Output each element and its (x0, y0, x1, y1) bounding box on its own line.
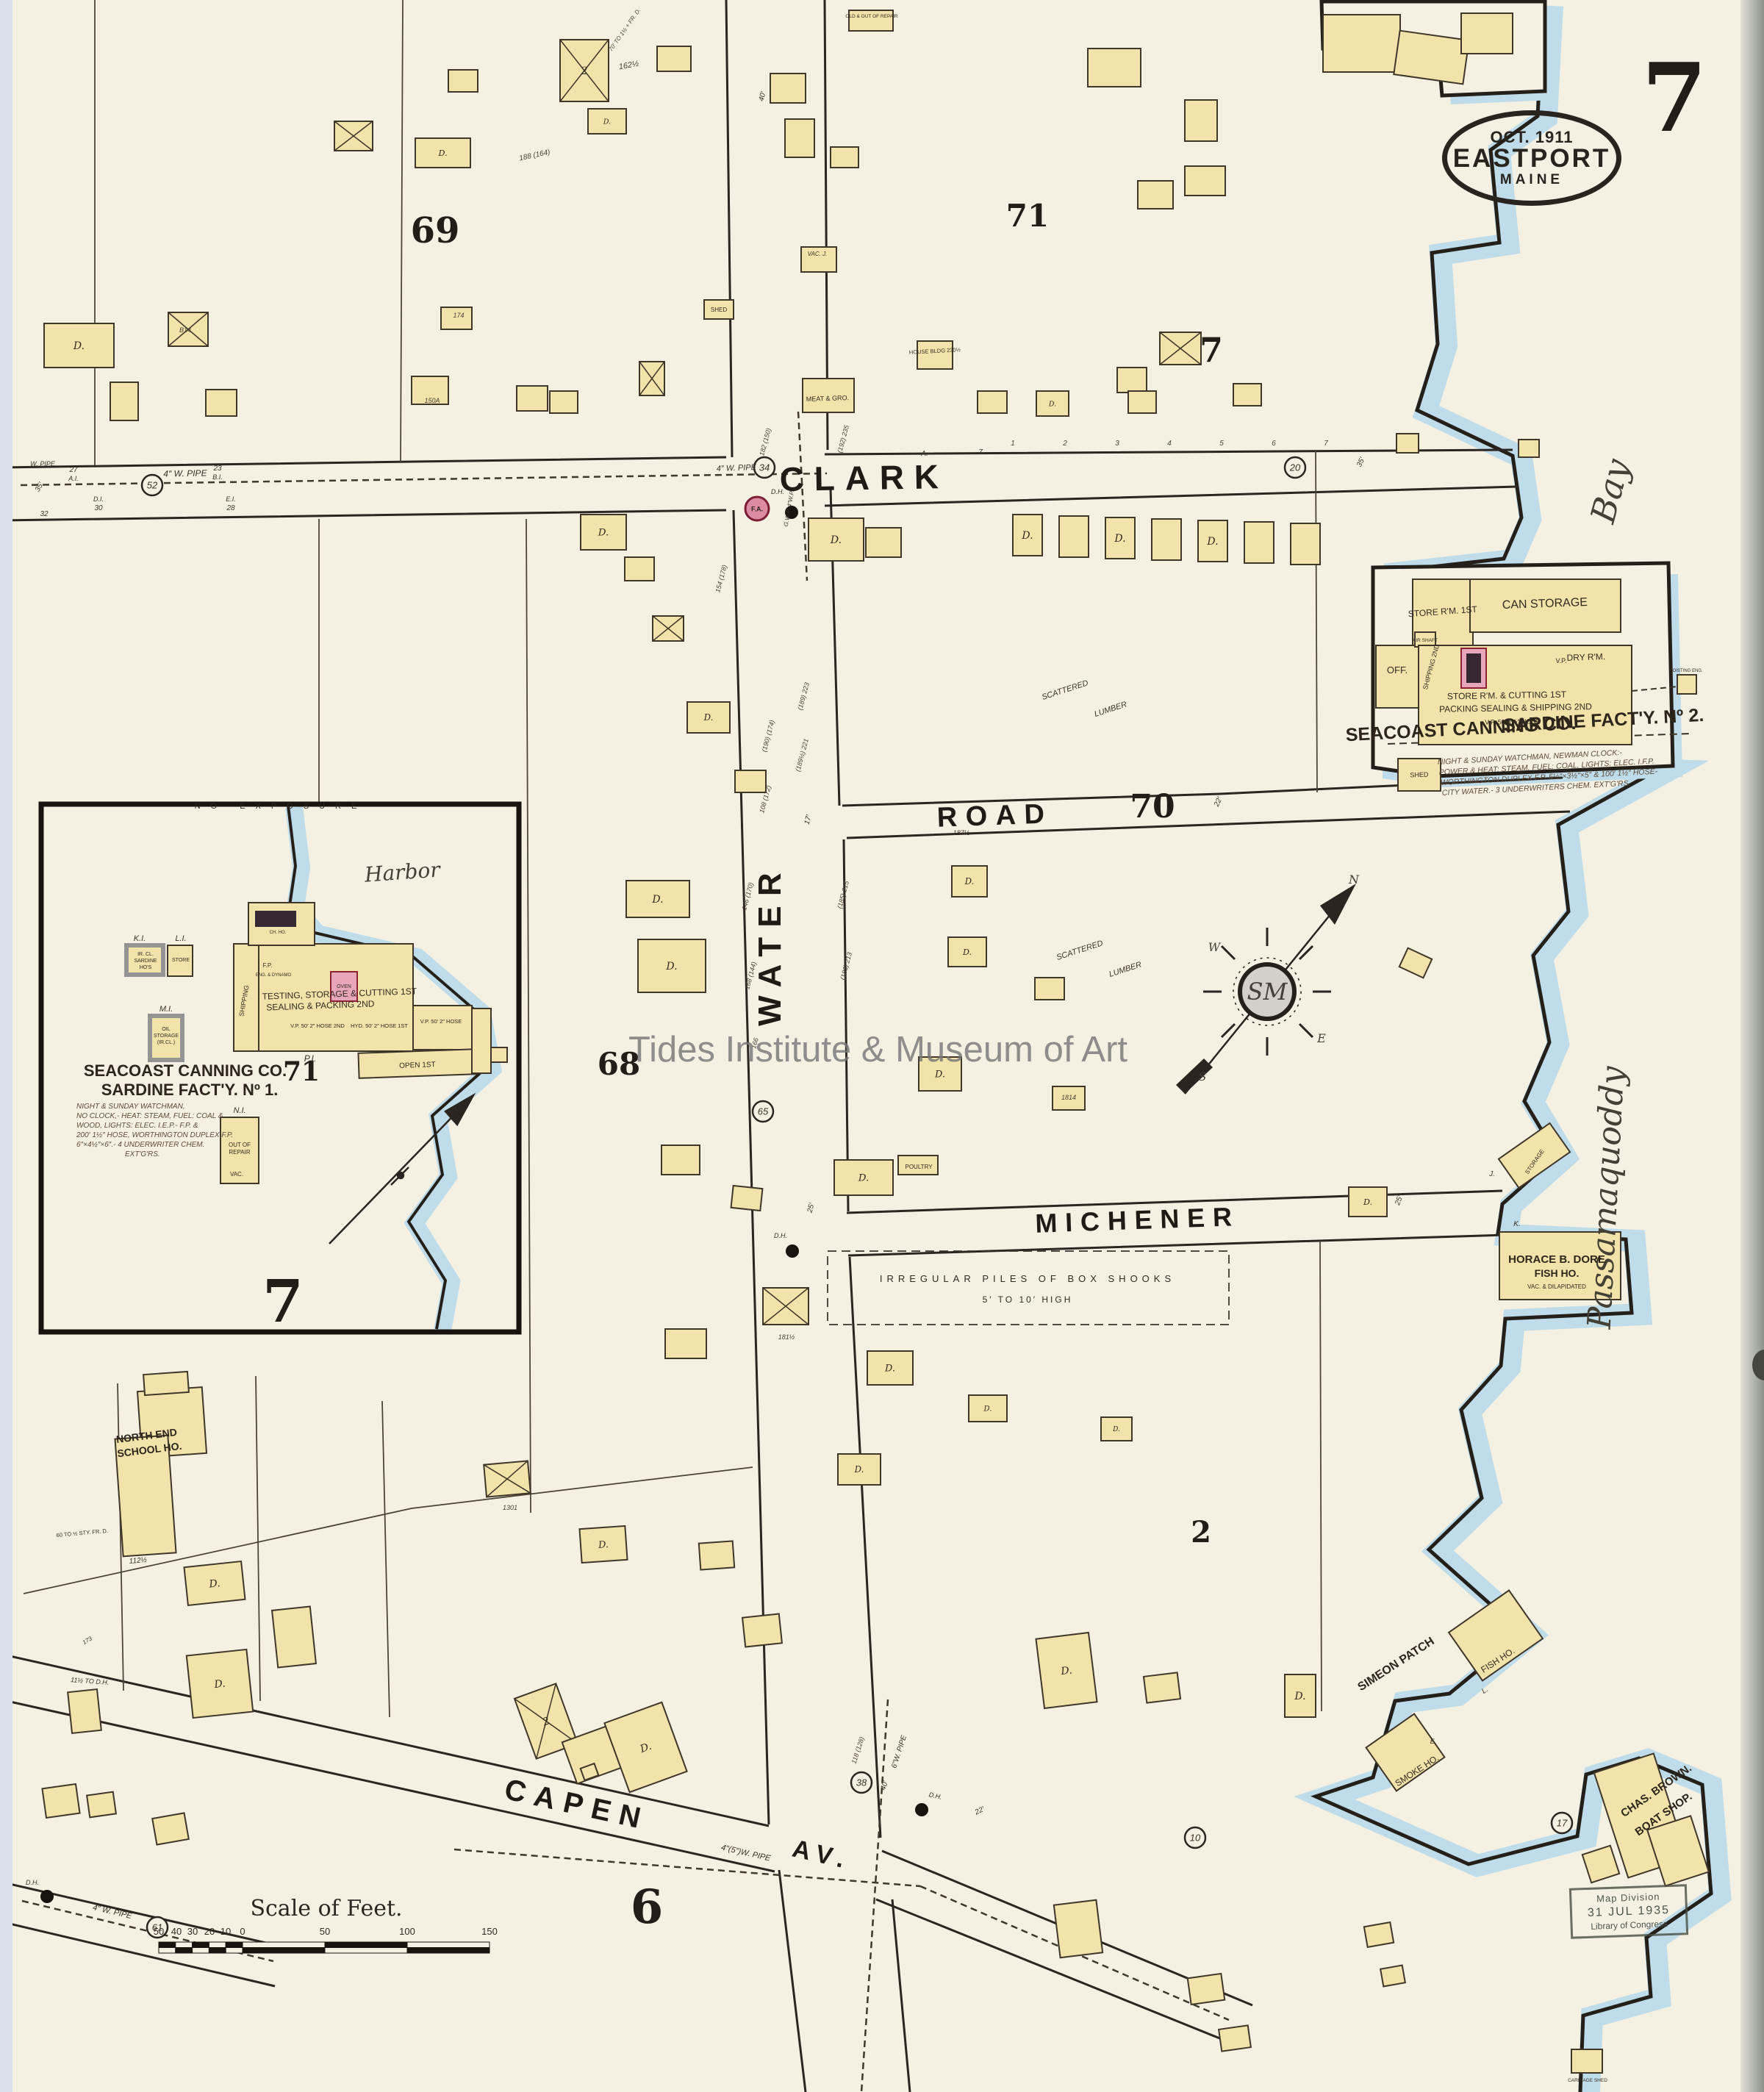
scale-tick: 0 (240, 1926, 245, 1937)
map-label: 3 (1115, 440, 1119, 448)
map-label: HORACE B. DORE (1508, 1253, 1605, 1266)
building (978, 391, 1007, 413)
stamp-state: MAINE (1500, 173, 1563, 187)
building-label: D. (962, 948, 972, 957)
building (763, 1288, 808, 1325)
building-footprint (665, 1329, 706, 1358)
building (625, 557, 654, 581)
building (256, 911, 295, 926)
map-label: 25′ (1394, 1194, 1405, 1207)
building: D. (1105, 517, 1135, 559)
map-label: 70′ TO 1½ + FR. D. (607, 7, 642, 53)
building-label: 2 (581, 65, 588, 77)
map-label: POULTRY (905, 1164, 933, 1170)
building-footprint (731, 1186, 763, 1211)
building-label: D. (854, 1464, 864, 1475)
map-label: 7 (978, 448, 983, 456)
building: D. (838, 1454, 881, 1485)
map-label: 182 (150) (758, 427, 772, 456)
map-label: 7 (1324, 440, 1328, 448)
scale-segment (243, 1942, 325, 1948)
building-footprint (917, 341, 953, 369)
scan-edge-right (1740, 0, 1764, 2092)
building-label: D. (1060, 1665, 1073, 1678)
scale-segment (209, 1942, 226, 1948)
building-footprint (256, 911, 295, 926)
utility-number: 38 (856, 1777, 867, 1788)
building (639, 362, 664, 395)
map-label: 173 (82, 1635, 94, 1646)
building-footprint (1185, 166, 1225, 196)
scale-tick: 100 (399, 1926, 415, 1937)
map-label: HO'S (140, 965, 152, 970)
map-label: 200′ 1½″ HOSE, WORTHINGTON DUPLEX F.P. (76, 1131, 233, 1139)
building-footprint (1088, 49, 1141, 87)
scale-tick: 20 (204, 1926, 215, 1937)
building (42, 1784, 79, 1818)
building-label: D. (1294, 1691, 1305, 1702)
building-footprint (1219, 2025, 1251, 2051)
map-label: 70 (1130, 788, 1175, 825)
map-label: 32 (40, 510, 49, 518)
building (1399, 948, 1432, 978)
scale-segment (159, 1942, 176, 1948)
map-label: D.H. (771, 488, 784, 495)
building-footprint (413, 1006, 472, 1050)
map-label: VAC. J. (808, 251, 828, 257)
building: D. (808, 518, 864, 561)
map-label: LUMBER (1093, 700, 1127, 719)
map-label: 6″×4½″×6″.- 4 UNDERWRITER CHEM. (76, 1141, 204, 1149)
map-label: V.P. 50′ 1½″ HOSE (1485, 717, 1541, 726)
building: D. (952, 866, 987, 897)
map-label: 40′ (758, 90, 768, 102)
map-label: (185) 215 (836, 879, 850, 909)
building-label: D. (437, 148, 447, 158)
building (1461, 13, 1513, 54)
building-footprint (1323, 15, 1400, 72)
property-lines (24, 0, 1322, 1717)
building-label: D. (964, 876, 975, 886)
building (1244, 522, 1274, 563)
building-footprint (1291, 523, 1320, 565)
scale-segment (325, 1948, 407, 1954)
water-pipe (861, 1699, 888, 2092)
building (699, 1541, 734, 1569)
map-label: 150A (424, 397, 440, 404)
map-label: M.I. (159, 1005, 173, 1014)
sanborn-map-page: D.D.2D.D.D.D.D.D.D.D.D.D.D.D.D.D.D.D.D.D… (0, 0, 1764, 2092)
scale-segment (226, 1948, 243, 1954)
fire-alarm-marker: F.A. (745, 497, 769, 520)
scale-tick: 50 (320, 1926, 330, 1937)
map-label: 40′ (879, 1779, 890, 1791)
map-label: 17′ (803, 814, 814, 825)
map-label: IRREGULAR PILES OF BOX SHOOKS (880, 1273, 1175, 1284)
map-label: STORAGE (154, 1034, 179, 1039)
building-footprint (1233, 384, 1261, 406)
building-footprint (1376, 645, 1419, 708)
map-label: REPAIR (229, 1149, 250, 1156)
map-label: E. (1430, 1738, 1437, 1745)
building-footprint (491, 1047, 507, 1062)
building-footprint (866, 528, 901, 557)
building (1117, 368, 1147, 393)
dh-dot (786, 1244, 799, 1258)
building: D. (969, 1395, 1007, 1422)
map-label: DRY R'M. (1566, 651, 1605, 663)
building-label: D. (1363, 1197, 1372, 1207)
building-footprint (472, 1009, 491, 1073)
map-label: OPEN 1ST (399, 1061, 436, 1070)
building: D. (415, 138, 470, 168)
fire-alarm-label: F.A. (751, 506, 763, 513)
map-label: E (1316, 1031, 1326, 1045)
map-label: MEAT & GRO. (806, 394, 850, 403)
building: 2 (560, 40, 609, 101)
building-label: D. (208, 1577, 221, 1591)
dh-dot (40, 1890, 54, 1903)
building-footprint (625, 557, 654, 581)
building-footprint (1582, 1846, 1619, 1883)
building-footprint (272, 1606, 316, 1667)
building (448, 70, 478, 92)
map-label: A. (920, 450, 928, 458)
building-footprint (206, 390, 237, 416)
map-label: OFF. (1387, 665, 1408, 676)
building (661, 1145, 700, 1175)
scale-segment (176, 1942, 193, 1948)
building: D. (1036, 1633, 1097, 1708)
map-label: S (1199, 1070, 1207, 1083)
building-footprint (1185, 100, 1217, 141)
building (1185, 166, 1225, 196)
building-footprint (1380, 1966, 1405, 1987)
map-label: 4″ W. PIPE (717, 463, 757, 473)
map-label: D.H. (928, 1791, 943, 1801)
building-footprint (657, 46, 691, 71)
map-label: 181½ (778, 1333, 795, 1341)
building: D. (581, 515, 626, 550)
map-label: F.P. (263, 962, 273, 969)
building (491, 1047, 507, 1062)
building-footprint (448, 70, 478, 92)
utility-number: 65 (758, 1106, 769, 1117)
map-label: 27 (68, 466, 78, 474)
map-label: W. PIPE (30, 460, 56, 468)
building (1219, 2025, 1251, 2051)
building-footprint (1394, 31, 1469, 85)
map-label: SHED (711, 307, 727, 313)
map-label: IR. CL. (137, 952, 154, 957)
building-label: D. (213, 1678, 226, 1691)
map-label: EXT'G'RS. (125, 1150, 160, 1158)
building-footprint (1128, 391, 1156, 413)
building (110, 382, 138, 420)
scale-tick: 50 (154, 1926, 164, 1937)
building-footprint (785, 119, 814, 157)
map-label: 69 (411, 210, 460, 251)
building: D. (1013, 515, 1042, 556)
map-label: A.I. (68, 475, 79, 482)
building (1571, 2049, 1602, 2073)
map-label: B.I. (212, 473, 223, 481)
map-label: (183) 213 (839, 951, 853, 981)
map-label: SARDINE FACT'Y. Nº 1. (101, 1081, 279, 1099)
building: D. (948, 937, 986, 967)
building-footprint (735, 770, 766, 792)
map-label: (189½) 221 (794, 738, 810, 773)
building-label: D. (1112, 1426, 1120, 1433)
map-label: 1301 (503, 1504, 517, 1511)
map-label: 22′ (973, 1805, 986, 1817)
building (472, 1009, 491, 1073)
scale-segment (176, 1948, 193, 1954)
building (770, 74, 806, 103)
building (653, 616, 684, 641)
stamp-city: EASTPORT (1453, 146, 1611, 173)
map-label: Scale of Feet. (250, 1896, 402, 1921)
scan-edge-left (0, 0, 12, 2092)
map-label: (189) 223 (796, 681, 811, 711)
map-label: HYD. 50′ 2″ HOSE 1ST (351, 1022, 408, 1029)
utility-marker: 20 (1285, 457, 1305, 478)
building-footprint (550, 391, 578, 413)
map-label: 7 (1200, 330, 1223, 370)
building (87, 1792, 116, 1818)
building-footprint (1467, 654, 1480, 682)
building (735, 770, 766, 792)
map-label: 5′ TO 10′ HIGH (983, 1294, 1073, 1305)
map-label: 30 (94, 504, 103, 512)
building (1380, 1966, 1405, 1987)
map-label: HOISTING ENG. (1669, 669, 1703, 673)
building (1376, 645, 1419, 708)
map-label: OLD & OUT OF REPAIR (845, 14, 898, 19)
utility-number: 17 (1557, 1818, 1568, 1829)
building (1144, 1672, 1180, 1702)
building (1138, 181, 1173, 209)
map-label: MICHENER (1035, 1201, 1241, 1239)
building (1152, 519, 1181, 560)
building-footprint (87, 1792, 116, 1818)
building-label: D. (665, 961, 677, 972)
building (413, 1006, 472, 1050)
building (68, 1689, 101, 1733)
map-label: 2 (1062, 440, 1067, 448)
map-label: 2 (1191, 1515, 1211, 1550)
building: D. (1349, 1187, 1387, 1217)
map-label: AIR SHAFT (1413, 638, 1438, 643)
building-label: D. (1114, 533, 1125, 545)
building: D. (834, 1160, 893, 1195)
library-of-congress-stamp: Map Division 31 JUL 1935 Library of Cong… (1569, 1884, 1688, 1939)
building-footprint (1054, 1900, 1102, 1958)
map-label: 5 (1219, 440, 1224, 448)
map-label: STORE (172, 958, 190, 963)
building: D. (604, 1702, 686, 1792)
building (550, 391, 578, 413)
map-label: N.I. (233, 1106, 245, 1115)
map-label: CLARK (779, 457, 949, 498)
map-label: V.P. 50′ 2″ HOSE 2ND (290, 1022, 345, 1029)
map-label: 112½ (129, 1556, 148, 1566)
map-label: 188 (164) (518, 148, 551, 163)
map-label: 1 (1011, 440, 1015, 448)
building: D. (187, 1649, 253, 1718)
map-label: 6 (1272, 440, 1276, 448)
building (1233, 384, 1261, 406)
building (866, 528, 901, 557)
building-label: D. (598, 528, 609, 539)
building (1059, 516, 1089, 557)
building-footprint (42, 1784, 79, 1818)
map-label: D.H. (774, 1232, 787, 1239)
building (731, 1186, 763, 1211)
scale-segment (243, 1948, 325, 1954)
utility-marker: 17 (1552, 1813, 1572, 1833)
building: D. (687, 702, 730, 733)
map-label: 7 (262, 1267, 304, 1336)
map-label: WOOD, LIGHTS: ELEC. I.E.P.- F.P. & (76, 1122, 198, 1130)
building-footprint (831, 147, 858, 168)
building (272, 1606, 316, 1667)
map-label: 7 (1641, 43, 1707, 154)
map-label: NO CLOCK,- HEAT: STEAM, FUEL: COAL & (76, 1112, 223, 1120)
building-label: D. (830, 534, 842, 546)
map-label: 6″W. PIPE (890, 1734, 908, 1769)
building (831, 147, 858, 168)
map-label: W (1208, 940, 1222, 954)
building (152, 1813, 189, 1844)
map-label: VAC. (230, 1171, 243, 1178)
building (1185, 100, 1217, 141)
building-footprint (770, 74, 806, 103)
map-label: 25′ (806, 1202, 817, 1214)
map-label: N (1348, 873, 1360, 886)
building-footprint (1399, 948, 1432, 978)
building: D. (1285, 1674, 1316, 1717)
building (143, 1372, 189, 1395)
scale-segment (407, 1948, 490, 1954)
building-footprint (1519, 440, 1539, 457)
map-label: 174 (453, 312, 464, 319)
building: D. (1198, 520, 1227, 562)
box-shooks-yard (828, 1251, 1229, 1325)
building (1188, 1974, 1225, 2005)
map-label: 154 (178) (714, 564, 728, 593)
watermark: Tides Institute & Museum of Art (604, 1029, 1152, 1070)
building (1677, 675, 1696, 694)
building-footprint (1152, 519, 1181, 560)
building-label: D. (983, 1405, 992, 1414)
scale-segment (193, 1942, 209, 1948)
map-label: NO EXPOSURE (195, 802, 367, 811)
utility-number: 34 (759, 462, 770, 473)
building: D. (184, 1561, 245, 1605)
building-footprint (661, 1145, 700, 1175)
map-label: CARRIAGE SHED (1568, 2078, 1607, 2083)
building-footprint (978, 391, 1007, 413)
building-label: D. (934, 1070, 945, 1081)
map-label: FISH HO. (1535, 1267, 1580, 1279)
building-label: D. (858, 1173, 870, 1184)
map-label: SCATTERED (1055, 939, 1104, 962)
map-label: L.I. (175, 934, 186, 943)
building-footprint (517, 386, 548, 411)
building: D. (638, 939, 706, 992)
building-footprint (1461, 13, 1513, 54)
building-label: D. (603, 118, 611, 126)
map-label: STORE R'M. & CUTTING 1ST (1447, 689, 1567, 702)
scale-tick: 40 (171, 1926, 182, 1937)
map-label: 6 (631, 1880, 664, 1935)
map-label: K.I. (134, 934, 146, 943)
building: D. (867, 1351, 913, 1385)
building (785, 119, 814, 157)
utility-number: 52 (147, 480, 158, 491)
building (1160, 332, 1201, 365)
scale-segment (226, 1942, 243, 1948)
building-label: D. (598, 1539, 609, 1551)
building (1582, 1846, 1619, 1883)
utility-number: 20 (1289, 462, 1301, 473)
map-label: SHED (1410, 771, 1429, 779)
map-label: Harbor (363, 857, 442, 886)
building (1394, 31, 1469, 85)
building (1088, 49, 1141, 87)
scale-tick: 150 (481, 1926, 498, 1937)
utility-marker: 52 (142, 475, 162, 495)
map-label: SCATTERED (1041, 678, 1089, 702)
map-label: Passamaquoddy (1581, 1064, 1632, 1330)
map-label: OVEN (337, 984, 351, 989)
building-label: D. (1206, 536, 1218, 548)
building (1467, 654, 1480, 682)
stamp-date: OCT. 1911 (1491, 129, 1574, 146)
utility-number: 10 (1190, 1833, 1201, 1844)
map-label: P.I. (304, 1053, 316, 1064)
map-label: AV. (789, 1835, 854, 1875)
map-label: ROAD (936, 798, 1053, 833)
utility-marker: 65 (753, 1101, 773, 1122)
map-label: 118 (128) (850, 1736, 866, 1765)
building: D. (588, 109, 626, 134)
building (484, 1461, 531, 1497)
map-label: 4″ W. PIPE (163, 468, 207, 479)
building (1128, 391, 1156, 413)
building (1054, 1900, 1102, 1958)
building (657, 46, 691, 71)
map-label: SIMEON PATCH (1355, 1635, 1436, 1694)
map-label: Bay (1582, 454, 1638, 528)
building-label: D. (651, 894, 663, 906)
building-footprint (1571, 2049, 1602, 2073)
building (917, 341, 953, 369)
map-label: D.H. (26, 1879, 39, 1886)
map-label: WATER (752, 863, 788, 1026)
building-footprint (1117, 368, 1147, 393)
utility-marker: 34 (754, 457, 775, 478)
map-label: 35′ (1355, 456, 1367, 468)
building-footprint (1035, 978, 1064, 1000)
scale-tick: 30 (187, 1926, 198, 1937)
map-label: (190) (174) (761, 719, 776, 753)
building-footprint (699, 1541, 734, 1569)
map-label: SARDINE (134, 959, 157, 964)
building-footprint (110, 382, 138, 420)
map-label: SEACOAST CANNING CO. (84, 1061, 287, 1080)
